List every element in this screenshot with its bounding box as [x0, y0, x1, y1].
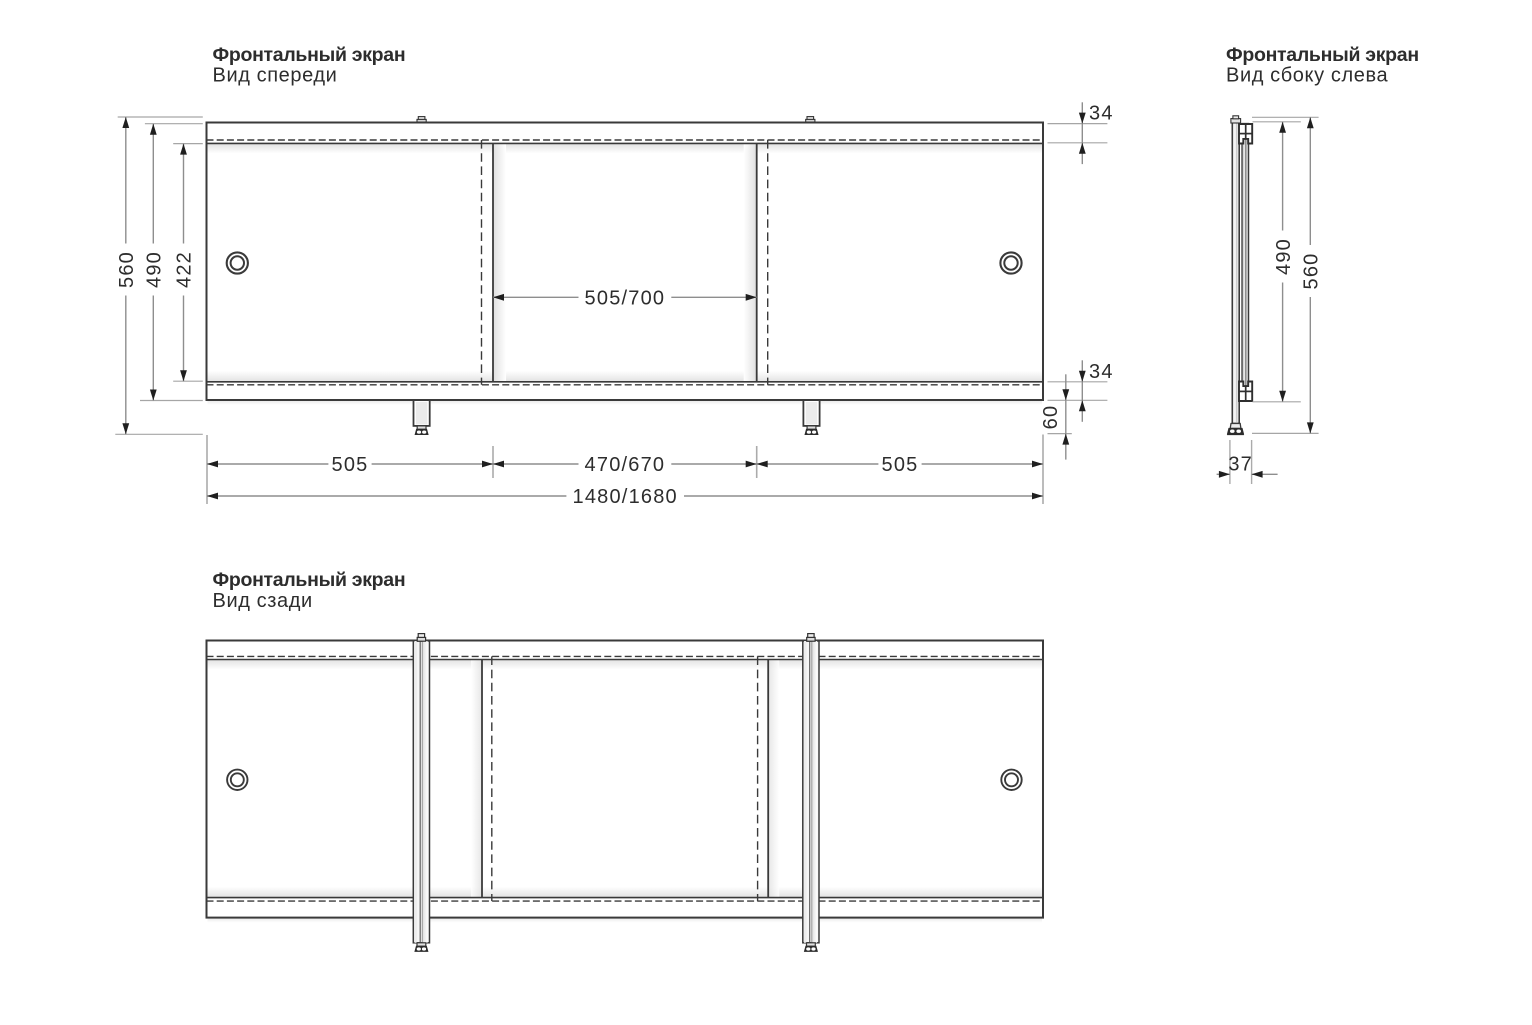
svg-text:60: 60 [1040, 405, 1062, 430]
svg-text:37: 37 [1228, 454, 1253, 476]
svg-text:34: 34 [1089, 361, 1114, 383]
svg-text:470/670: 470/670 [585, 454, 666, 476]
svg-text:490: 490 [144, 251, 166, 288]
svg-text:Вид спереди: Вид спереди [213, 65, 338, 87]
svg-text:Фронтальный экран: Фронтальный экран [1226, 44, 1419, 66]
svg-text:Вид сзади: Вид сзади [213, 590, 313, 612]
svg-text:505: 505 [332, 454, 369, 476]
svg-text:560: 560 [1301, 253, 1323, 290]
svg-text:Фронтальный экран: Фронтальный экран [213, 44, 406, 66]
svg-text:Фронтальный экран: Фронтальный экран [213, 569, 406, 591]
svg-text:505/700: 505/700 [585, 287, 666, 309]
svg-text:505: 505 [882, 454, 919, 476]
svg-text:422: 422 [174, 251, 196, 288]
svg-text:Вид сбоку слева: Вид сбоку слева [1226, 65, 1388, 87]
svg-text:1480/1680: 1480/1680 [573, 486, 678, 508]
svg-text:34: 34 [1089, 103, 1114, 125]
svg-text:490: 490 [1273, 238, 1295, 275]
svg-text:560: 560 [116, 251, 138, 288]
